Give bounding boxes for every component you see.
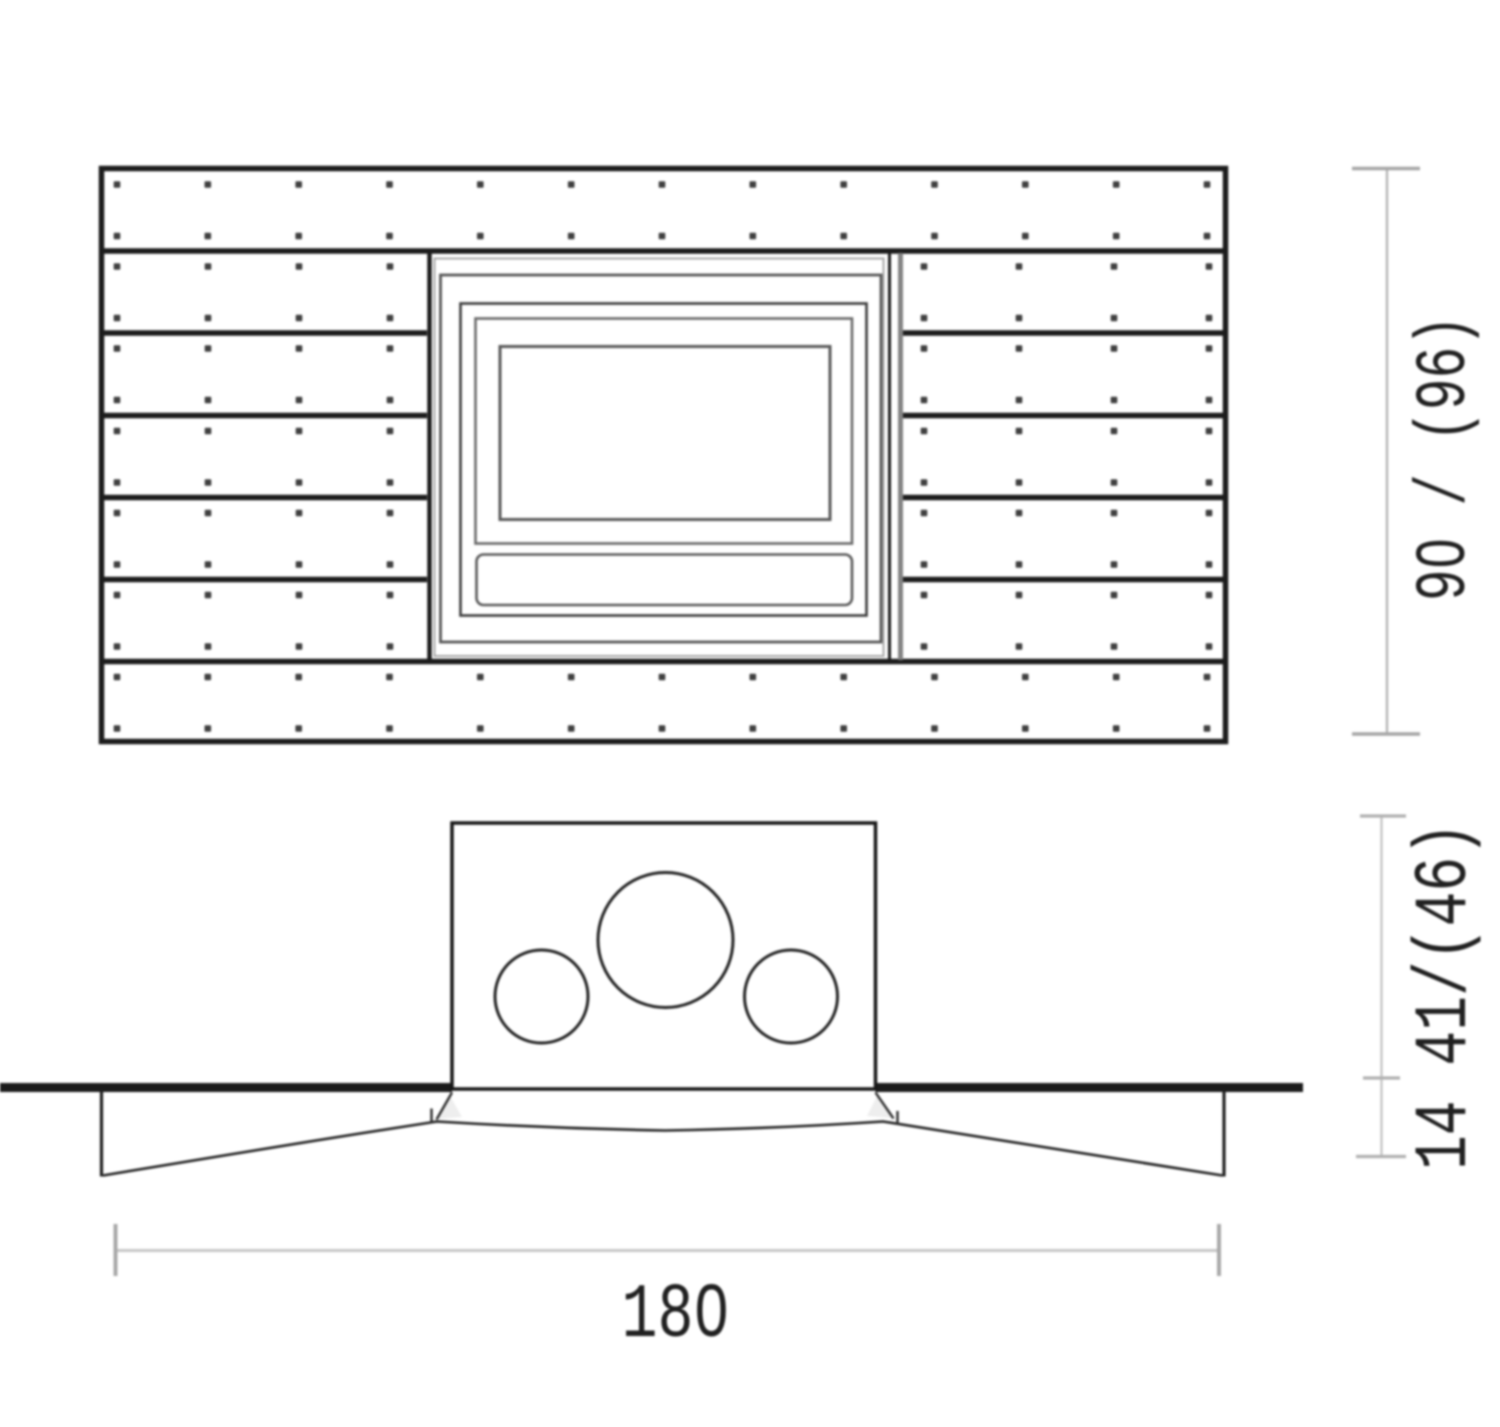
svg-text:14 41/(46): 14 41/(46) <box>1403 822 1488 1170</box>
svg-text:90 / (96): 90 / (96) <box>1405 315 1486 601</box>
